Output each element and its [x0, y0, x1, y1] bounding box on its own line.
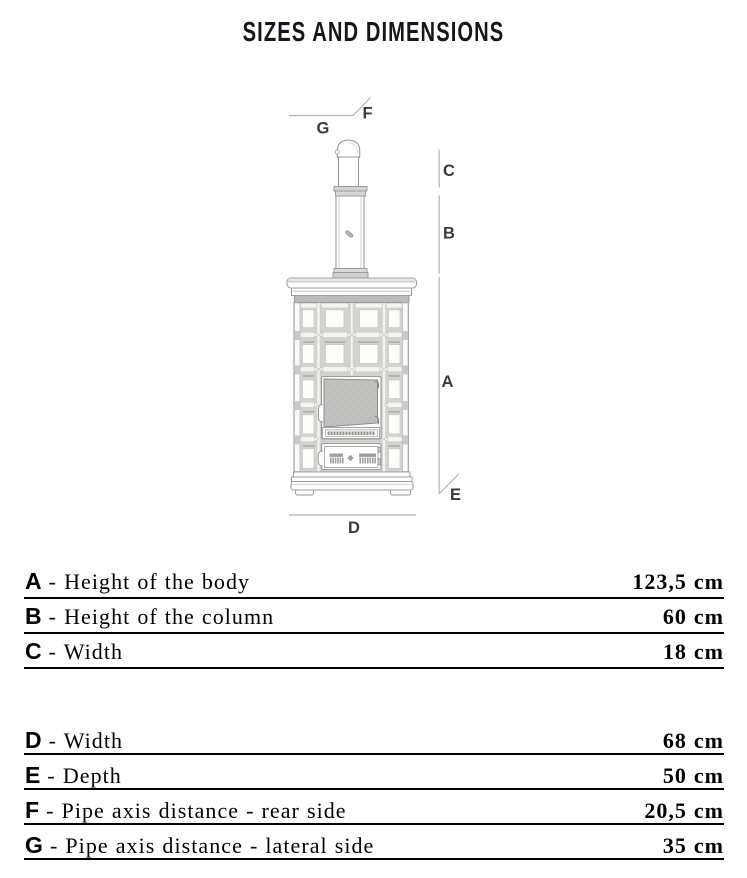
- svg-text:G: G: [317, 120, 330, 138]
- svg-text:B: B: [443, 225, 455, 243]
- svg-text:A: A: [442, 373, 454, 391]
- svg-text:E: E: [450, 486, 461, 504]
- svg-text:F: F: [363, 105, 373, 123]
- svg-text:D: D: [348, 519, 360, 537]
- svg-text:C: C: [443, 162, 455, 180]
